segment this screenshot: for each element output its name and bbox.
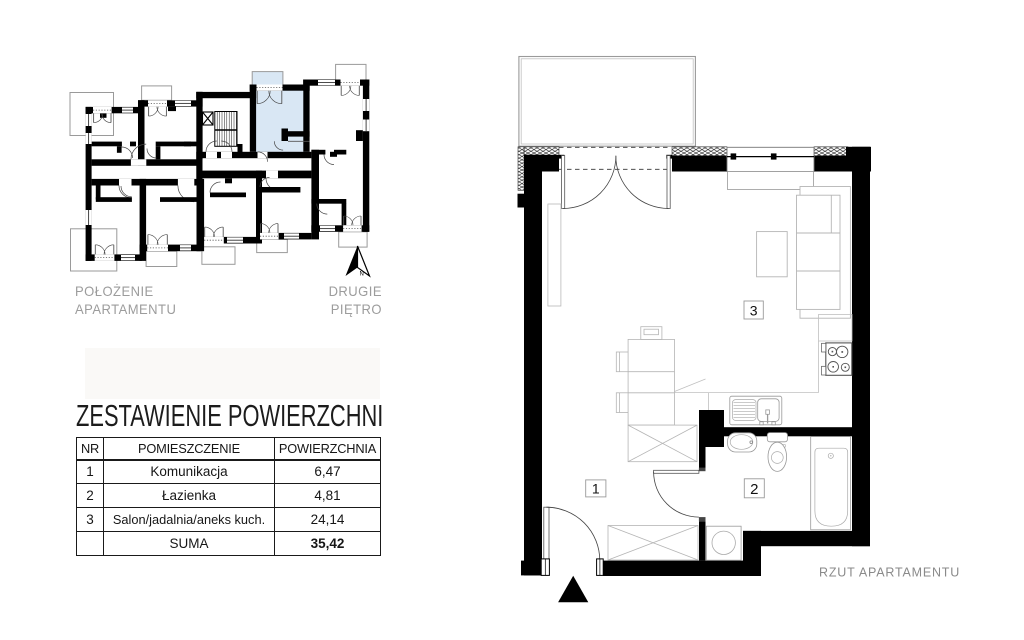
svg-text:1: 1 [592,480,600,496]
svg-text:RZUT APARTAMENTU: RZUT APARTAMENTU [819,566,960,580]
svg-text:2: 2 [750,481,758,498]
svg-text:N: N [360,272,364,278]
svg-text:3: 3 [750,302,758,318]
